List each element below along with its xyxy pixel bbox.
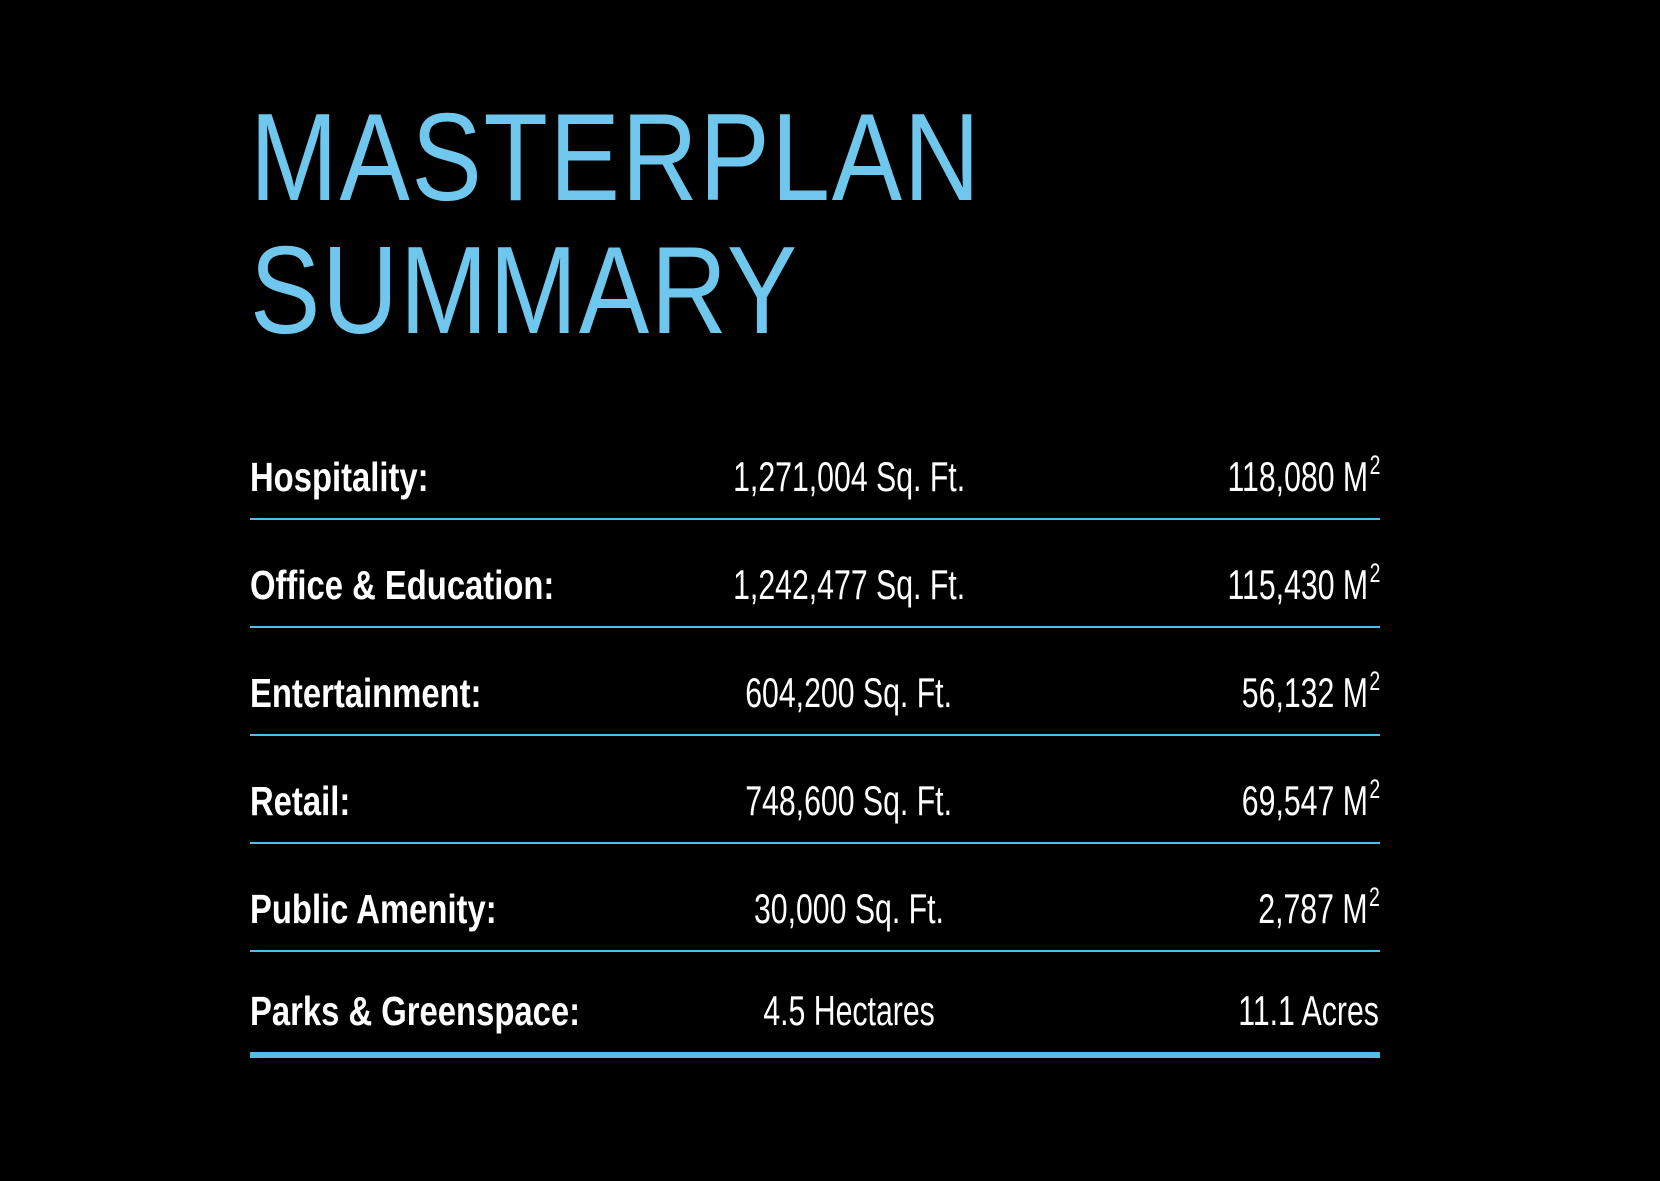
page-title: MASTERPLAN SUMMARY <box>250 92 1380 358</box>
table-row: Entertainment: 604,200 Sq. Ft. 56,132 M2 <box>250 628 1380 736</box>
metric-value: 11.1 Acres <box>1183 990 1380 1052</box>
slide-content: MASTERPLAN SUMMARY Hospitality: 1,271,00… <box>250 0 1380 1058</box>
row-label: Public Amenity: <box>250 889 558 950</box>
metric-value: 69,547 M2 <box>1188 780 1380 842</box>
table-row: Parks & Greenspace: 4.5 Hectares 11.1 Ac… <box>250 952 1380 1058</box>
superscript: 2 <box>1369 560 1380 587</box>
metric-value: 56,132 M2 <box>1188 672 1380 734</box>
metric-value: 118,080 M2 <box>1168 456 1380 518</box>
summary-table: Hospitality: 1,271,004 Sq. Ft. 118,080 M… <box>250 412 1380 1058</box>
superscript: 2 <box>1369 668 1380 695</box>
table-row: Hospitality: 1,271,004 Sq. Ft. 118,080 M… <box>250 412 1380 520</box>
metric-value: 115,430 M2 <box>1168 564 1380 626</box>
superscript: 2 <box>1369 452 1380 479</box>
page-title-line-1: MASTERPLAN <box>250 92 1211 225</box>
imperial-value: 4.5 Hectares <box>730 990 968 1052</box>
superscript: 2 <box>1369 776 1380 803</box>
row-label: Retail: <box>250 781 375 842</box>
row-label: Hospitality: <box>250 457 473 518</box>
table-row: Office & Education: 1,242,477 Sq. Ft. 11… <box>250 520 1380 628</box>
metric-value: 2,787 M2 <box>1211 888 1380 950</box>
table-row: Retail: 748,600 Sq. Ft. 69,547 M2 <box>250 736 1380 844</box>
imperial-value: 30,000 Sq. Ft. <box>717 888 981 950</box>
row-label: Entertainment: <box>250 673 539 734</box>
table-row: Public Amenity: 30,000 Sq. Ft. 2,787 M2 <box>250 844 1380 952</box>
imperial-value: 1,242,477 Sq. Ft. <box>688 564 1010 626</box>
page-title-line-2: SUMMARY <box>250 225 1211 358</box>
row-label: Parks & Greenspace: <box>250 991 663 1052</box>
imperial-value: 604,200 Sq. Ft. <box>705 672 992 734</box>
imperial-value: 748,600 Sq. Ft. <box>705 780 992 842</box>
superscript: 2 <box>1369 884 1380 911</box>
row-label: Office & Education: <box>250 565 630 626</box>
imperial-value: 1,271,004 Sq. Ft. <box>688 456 1010 518</box>
masterplan-summary-slide: MASTERPLAN SUMMARY Hospitality: 1,271,00… <box>0 0 1660 1181</box>
